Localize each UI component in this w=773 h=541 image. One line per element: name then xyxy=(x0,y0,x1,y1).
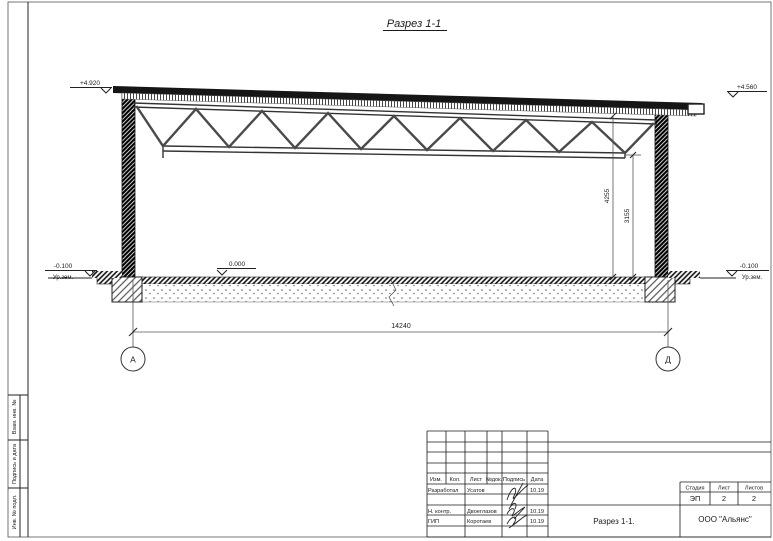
svg-text:Кол.: Кол. xyxy=(449,477,461,483)
svg-text:ГИП: ГИП xyxy=(428,519,439,525)
elevation-arrow-icon xyxy=(727,271,737,276)
svg-text:+4.560: +4.560 xyxy=(737,84,757,91)
svg-text:4255: 4255 xyxy=(604,188,611,203)
svg-text:Д: Д xyxy=(665,355,671,365)
stage-value: ЭП xyxy=(690,494,701,503)
svg-text:-0.100: -0.100 xyxy=(54,263,73,270)
svg-text:0.000: 0.000 xyxy=(229,261,246,268)
elevation-ridge-right: +4.560 xyxy=(727,84,767,97)
floor-slab xyxy=(97,277,690,284)
company-name: ООО "Альянс" xyxy=(698,515,752,524)
svg-text:10.19: 10.19 xyxy=(530,509,544,515)
margin-strip: Взам. инв. № Подпись и дата Инв. № подл. xyxy=(8,395,28,537)
roof-edge-beam xyxy=(688,104,704,114)
margin-cell-inv: Инв. № подл. xyxy=(12,494,18,529)
svg-text:3155: 3155 xyxy=(624,208,631,223)
svg-text:Изм.: Изм. xyxy=(430,477,442,483)
drawing-sheet: Взам. инв. № Подпись и дата Инв. № подл.… xyxy=(0,0,773,541)
svg-text:10.19: 10.19 xyxy=(530,519,544,525)
stage-block: Стадия Лист Листов ЭП 2 2 xyxy=(685,486,763,504)
axis-bubble-right: Д xyxy=(656,347,680,371)
svg-text:+4.920: +4.920 xyxy=(80,80,100,87)
elevation-ridge-left: +4.920 xyxy=(70,80,112,93)
elevation-arrow-icon xyxy=(101,88,111,93)
sheet-value: 2 xyxy=(722,494,726,503)
page-title: Разрез 1-1 xyxy=(387,18,442,30)
sheets-value: 2 xyxy=(752,494,756,503)
dimension-height-truss: 3155 xyxy=(624,152,641,280)
svg-text:Разработал: Разработал xyxy=(428,488,458,494)
svg-text:Подпись: Подпись xyxy=(503,477,525,483)
svg-text:Н. контр.: Н. контр. xyxy=(428,509,452,515)
view-title: Разрез 1-1 xyxy=(383,18,447,31)
svg-text:Стадия: Стадия xyxy=(685,486,704,492)
elevation-floor-zero: 0.000 xyxy=(217,261,256,275)
title-block: Изм. Кол. Лист №док. Подпись Дата Разраб… xyxy=(427,431,771,537)
elevation-arrow-icon xyxy=(217,270,227,275)
svg-text:Лист: Лист xyxy=(718,486,731,492)
svg-text:№док.: №док. xyxy=(486,477,503,483)
column-left xyxy=(122,88,135,277)
svg-text:Листов: Листов xyxy=(745,486,763,492)
margin-cell-podpis: Подпись и дата xyxy=(12,443,18,484)
ground-wedge-left xyxy=(92,271,122,278)
ground-level-label: Ур.зем. xyxy=(742,275,763,281)
axis-bubble-left: А xyxy=(121,347,145,371)
svg-text:А: А xyxy=(130,355,136,365)
margin-cell-vzam: Взам. инв. № xyxy=(12,400,18,435)
subfloor-fill xyxy=(142,284,645,302)
foundation-right xyxy=(645,277,675,302)
svg-text:-0.100: -0.100 xyxy=(740,263,759,270)
ground-wedge-right xyxy=(668,271,700,278)
ground-level-label: Ур.зем. xyxy=(53,275,74,281)
elevation-arrow-icon xyxy=(728,92,738,97)
svg-text:14240: 14240 xyxy=(391,323,411,330)
column-right xyxy=(655,113,668,277)
svg-text:Двоеглазов: Двоеглазов xyxy=(467,509,497,515)
doc-title: Разрез 1-1. xyxy=(593,517,635,526)
svg-text:Лист: Лист xyxy=(470,477,483,483)
signatures xyxy=(507,483,528,528)
svg-text:10.19: 10.19 xyxy=(530,488,544,494)
svg-text:Коротаев: Коротаев xyxy=(467,519,491,525)
svg-text:Усатов: Усатов xyxy=(467,488,485,494)
svg-text:Дата: Дата xyxy=(531,477,544,483)
foundation-left xyxy=(112,277,142,302)
signature-icon xyxy=(507,507,525,519)
